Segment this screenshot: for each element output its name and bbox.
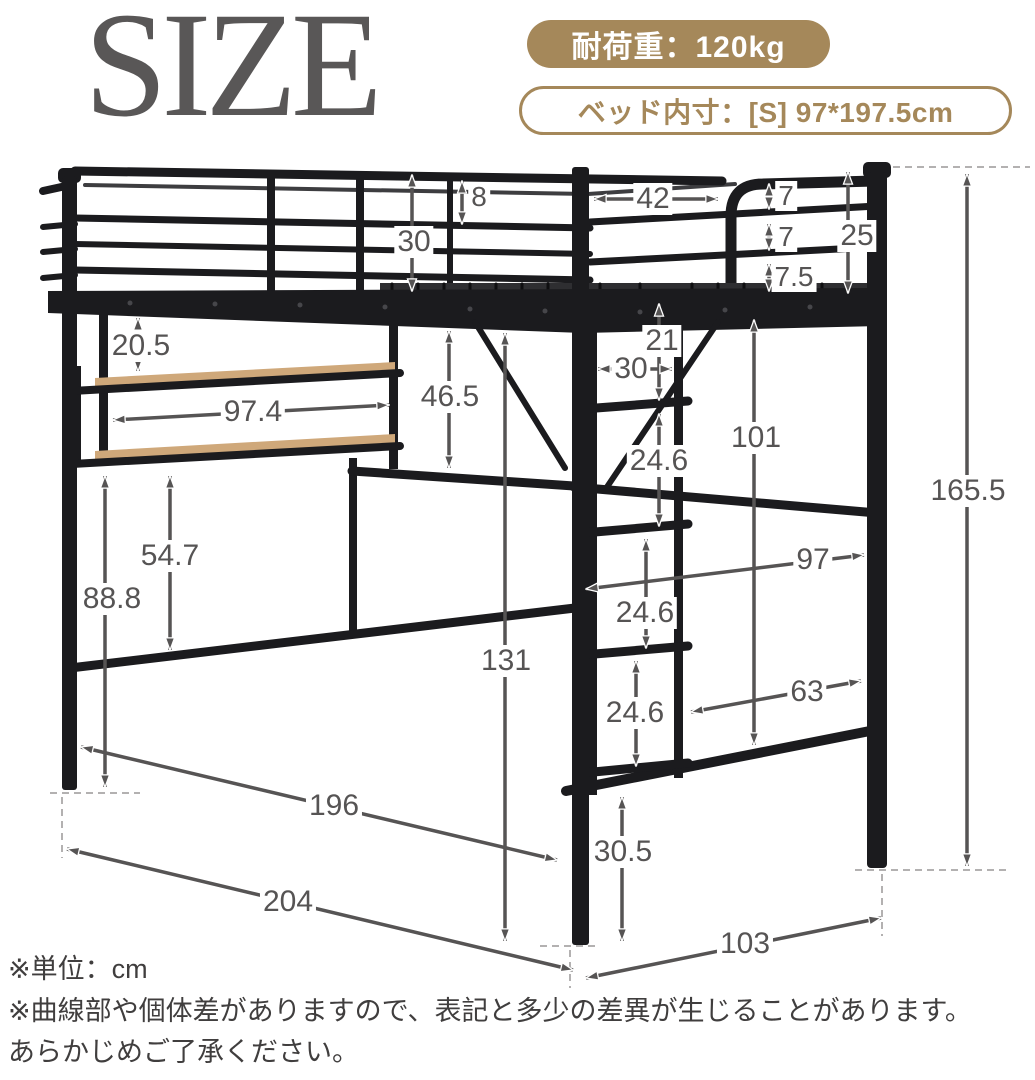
dim-label-rail-top-gap: 8 [468,182,490,212]
ladder-rung-1 [583,401,688,409]
dim-label-shelf-floor-height: 88.8 [80,583,144,615]
dim-label-end-gap-3: 7.5 [772,262,817,292]
dim-label-inner-length: 196 [306,790,362,822]
ladder-rung-2 [583,524,688,533]
dim-label-end-rail-height: 25 [837,220,876,252]
dim-label-leg-height: 30.5 [591,836,655,868]
dim-label-frame-inner-width: 63 [787,676,826,708]
dim-label-end-gap-1: 7 [775,181,797,211]
foot-front-post [572,167,589,945]
dim-label-under-bed-clearance: 131 [478,645,534,677]
dim-label-end-gap-2: 7 [775,222,797,252]
dim-label-bed-inner-width: 97 [793,544,832,576]
note-disclaimer-line2: あらかじめご了承ください。 [8,1036,359,1068]
arrow-outer-length [67,849,573,970]
ladder-rung-3 [583,646,688,655]
dim-label-guard-rail-height: 30 [394,226,433,258]
dim-label-ladder-step-1: 24.6 [627,445,691,477]
dim-label-under-rail-clearance: 46.5 [418,381,482,413]
note-unit: ※単位：cm [8,953,148,985]
dim-label-ladder-opening: 42 [633,183,672,215]
front-brace [475,322,565,468]
dim-label-depth: 103 [717,928,773,960]
dim-label-desk-rail-height: 54.7 [138,540,202,572]
dim-label-shelf-width: 97.4 [221,396,285,428]
dim-label-under-frame-height: 101 [728,422,784,454]
foot-rear-post [867,172,887,868]
dim-label-ladder-width: 30 [611,353,650,385]
dim-label-ladder-step-2: 24.6 [613,597,677,629]
size-diagram-page: SIZE 耐荷重：120kg ベッド内寸：[S] 97*197.5cm [0,0,1035,1080]
dim-label-ladder-step-3: 24.6 [603,697,667,729]
desk-leg [349,458,357,634]
dim-label-total-height: 165.5 [927,475,1008,507]
head-post [62,176,77,790]
note-disclaimer-line1: ※曲線部や個体差がありますので、表記と多少の差異が生じることがあります。 [8,995,972,1027]
dim-label-outer-length: 204 [260,886,316,918]
dim-label-shelf-clearance: 20.5 [109,330,173,362]
arrow-frame-inner-width [691,681,861,712]
